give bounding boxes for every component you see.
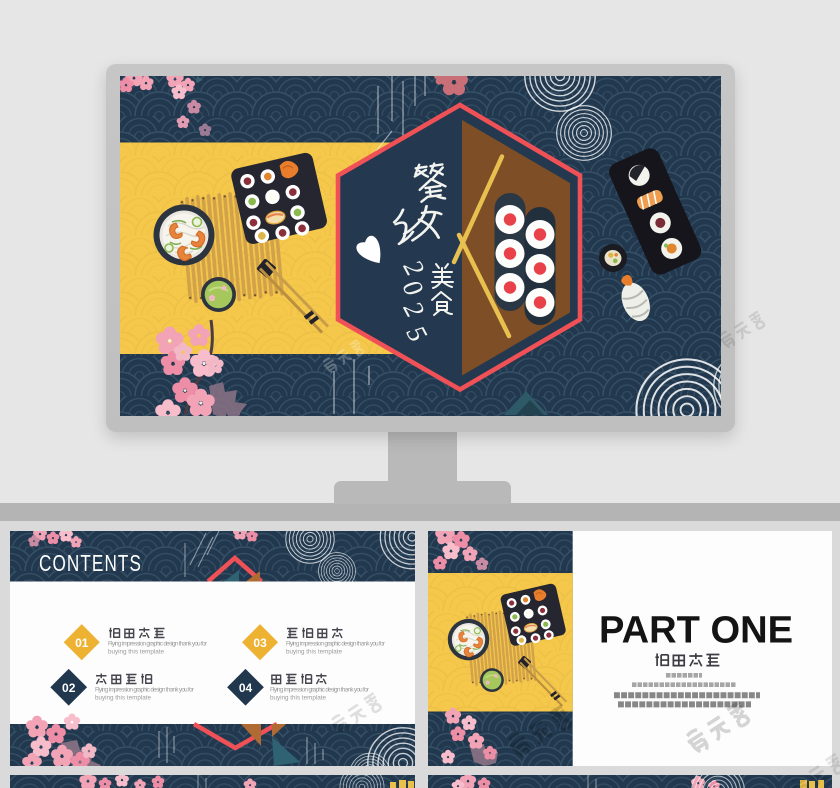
svg-text:04: 04 (239, 681, 253, 695)
svg-text:01: 01 (75, 636, 89, 650)
svg-text:Flying impression graphic desi: Flying impression graphic design thank y… (95, 687, 194, 694)
svg-text:buying this template: buying this template (95, 695, 152, 702)
svg-text:buying this template: buying this template (270, 695, 327, 702)
svg-text:03: 03 (253, 636, 267, 650)
svg-text:Flying impression graphic desi: Flying impression graphic design thank y… (270, 687, 369, 694)
svg-text:Flying impression graphic desi: Flying impression graphic design thank y… (286, 641, 385, 648)
svg-text:buying this template: buying this template (286, 649, 343, 656)
svg-text:Flying impression graphic desi: Flying impression graphic design thank y… (108, 641, 207, 648)
svg-text:CONTENTS: CONTENTS (39, 550, 142, 576)
svg-text:02: 02 (62, 681, 76, 695)
svg-text:buying this template: buying this template (108, 649, 165, 656)
svg-text:PART ONE: PART ONE (599, 610, 793, 652)
